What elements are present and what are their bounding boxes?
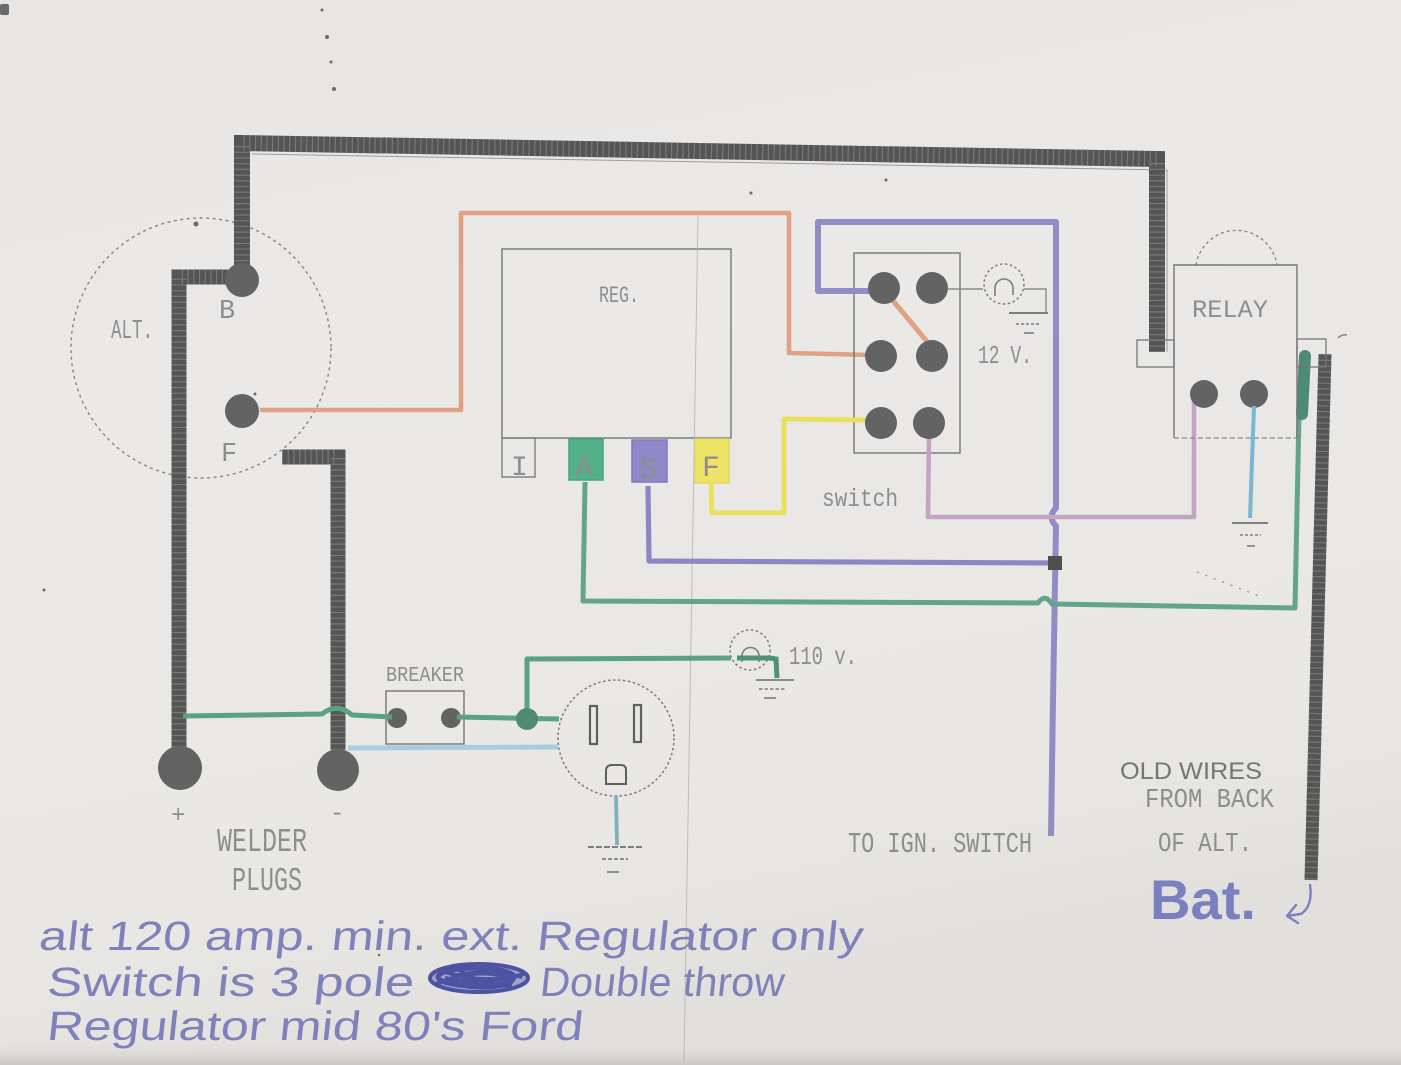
- svg-text:TO IGN. SWITCH: TO IGN. SWITCH: [848, 828, 1032, 861]
- svg-text:Regulator mid 80's Ford: Regulator mid 80's Ford: [45, 1003, 586, 1049]
- svg-text:S: S: [640, 454, 658, 488]
- svg-text:F: F: [702, 452, 720, 486]
- svg-text:F: F: [221, 440, 237, 470]
- svg-text:I: I: [511, 453, 528, 484]
- svg-text:B: B: [219, 297, 235, 327]
- svg-text:OF ALT.: OF ALT.: [1158, 830, 1252, 860]
- svg-text:RELAY: RELAY: [1192, 296, 1268, 325]
- svg-text:OLD WIRES: OLD WIRES: [1120, 758, 1262, 785]
- svg-text:110 v.: 110 v.: [789, 642, 857, 672]
- svg-text:FROM BACK: FROM BACK: [1145, 786, 1275, 816]
- svg-text:Switch is 3 pole: Switch is 3 pole: [45, 959, 417, 1005]
- svg-text:REG.: REG.: [599, 283, 639, 309]
- svg-text:alt 120 amp. min. ext. Regulat: alt 120 amp. min. ext. Regulator only: [37, 913, 866, 959]
- svg-text:12 V.: 12 V.: [978, 341, 1032, 371]
- svg-text:ALT.: ALT.: [111, 317, 153, 347]
- svg-text:switch: switch: [822, 485, 898, 514]
- svg-text:A: A: [575, 452, 593, 486]
- svg-text:Bat.: Bat.: [1150, 868, 1256, 931]
- svg-text:Double throw: Double throw: [538, 959, 787, 1005]
- svg-text:WELDER: WELDER: [217, 824, 307, 861]
- svg-text:-: -: [330, 801, 344, 828]
- svg-text:+: +: [171, 803, 185, 830]
- svg-text:BREAKER: BREAKER: [386, 665, 464, 688]
- svg-text:PLUGS: PLUGS: [232, 863, 302, 900]
